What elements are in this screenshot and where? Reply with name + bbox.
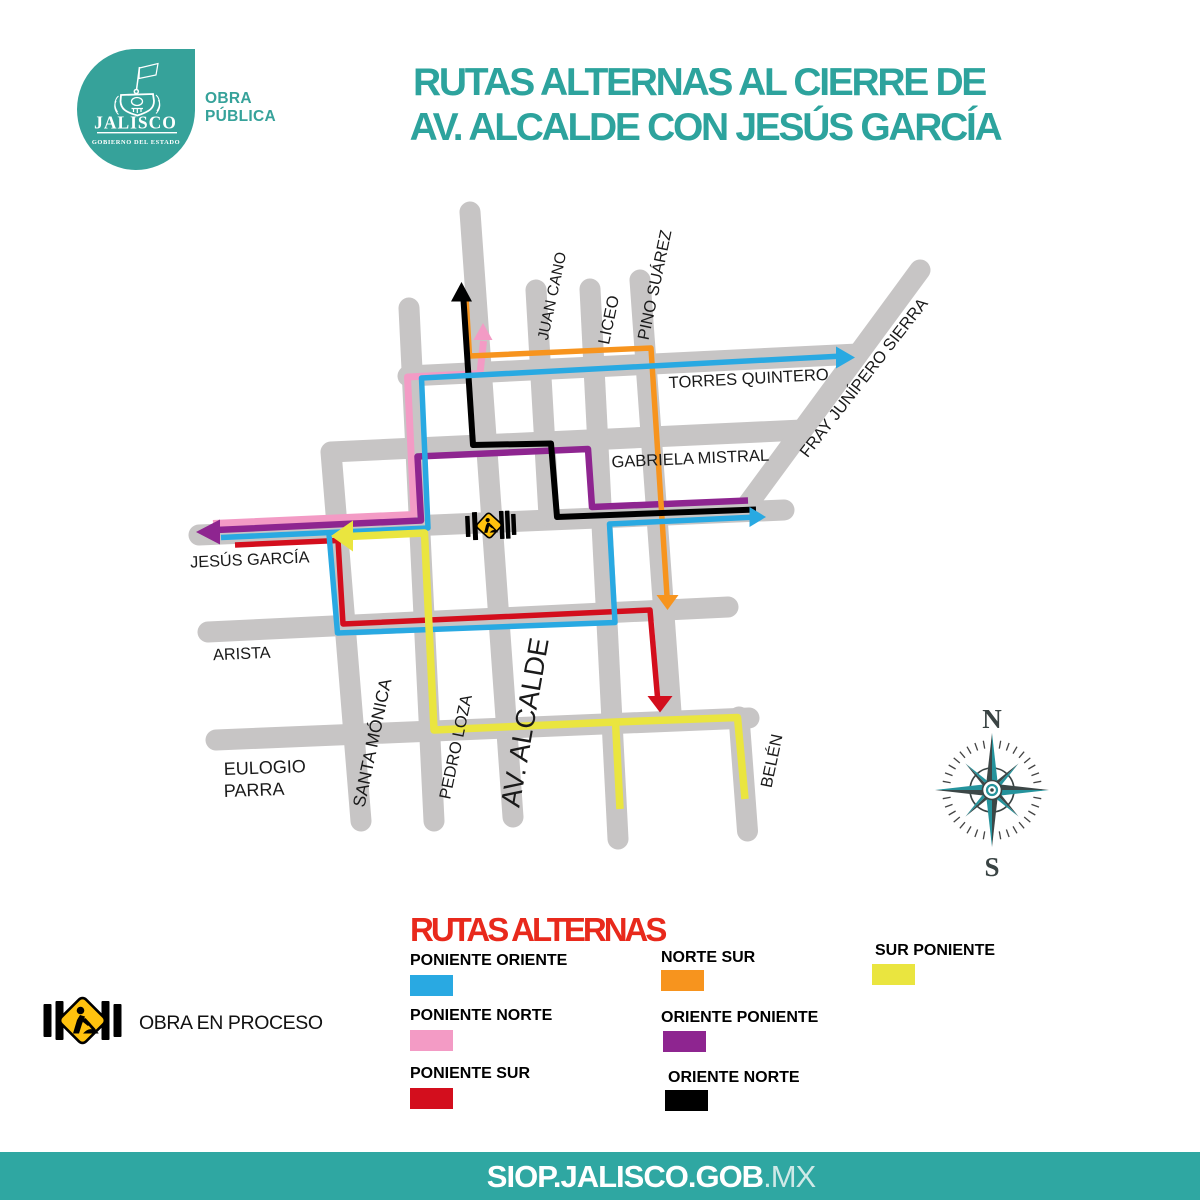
svg-text:NORTE SUR: NORTE SUR <box>661 949 756 966</box>
svg-text:PONIENTE SUR: PONIENTE SUR <box>410 1065 530 1082</box>
svg-text:AV. ALCALDE CON JESÚS GARCÍA: AV. ALCALDE CON JESÚS GARCÍA <box>410 105 1003 149</box>
svg-text:GOBIERNO DEL ESTADO: GOBIERNO DEL ESTADO <box>92 139 180 146</box>
svg-text:PEDRO LOZA: PEDRO LOZA <box>436 693 476 801</box>
svg-text:EULOGIO: EULOGIO <box>223 756 306 779</box>
svg-text:JALISCO: JALISCO <box>94 113 177 133</box>
svg-text:SIOP.JALISCO.GOB.MX: SIOP.JALISCO.GOB.MX <box>487 1159 817 1194</box>
svg-text:N: N <box>982 704 1002 734</box>
svg-text:RUTAS ALTERNAS: RUTAS ALTERNAS <box>410 911 666 948</box>
svg-text:JESÚS GARCÍA: JESÚS GARCÍA <box>190 547 310 571</box>
svg-text:BELÉN: BELÉN <box>757 732 787 789</box>
svg-text:PONIENTE ORIENTE: PONIENTE ORIENTE <box>410 952 568 969</box>
svg-text:ARISTA: ARISTA <box>213 644 271 665</box>
svg-text:S: S <box>984 852 999 882</box>
svg-text:RUTAS ALTERNAS AL CIERRE DE: RUTAS ALTERNAS AL CIERRE DE <box>413 61 986 104</box>
svg-text:PONIENTE NORTE: PONIENTE NORTE <box>410 1007 553 1024</box>
svg-text:SUR PONIENTE: SUR PONIENTE <box>875 942 995 959</box>
svg-text:OBRA EN PROCESO: OBRA EN PROCESO <box>139 1012 323 1034</box>
svg-text:PARRA: PARRA <box>223 779 284 801</box>
svg-text:GABRIELA MISTRAL: GABRIELA MISTRAL <box>611 447 769 472</box>
svg-text:PÚBLICA: PÚBLICA <box>205 107 276 125</box>
svg-text:ORIENTE NORTE: ORIENTE NORTE <box>668 1069 800 1086</box>
svg-text:OBRA: OBRA <box>205 90 252 107</box>
svg-text:ORIENTE PONIENTE: ORIENTE PONIENTE <box>661 1009 819 1026</box>
